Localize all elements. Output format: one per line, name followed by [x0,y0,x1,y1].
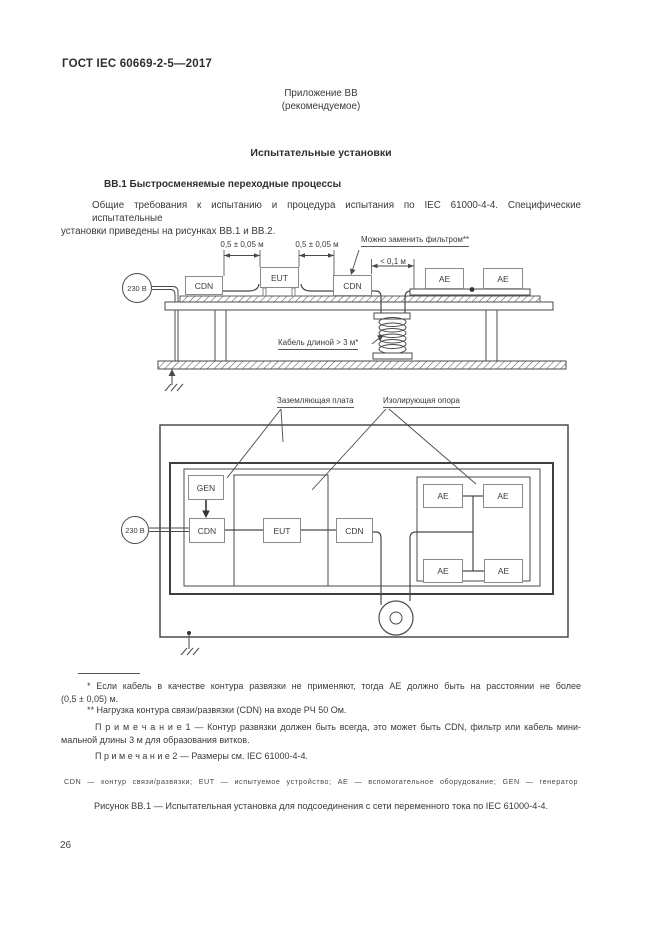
filter-note: Можно заменить фильтром** [361,235,469,247]
ae-box: AE [423,484,463,508]
dimension-label-left: 0,5 ± 0,05 м [210,240,274,250]
dimension-label-right: 0,5 ± 0,05 м [285,240,349,250]
ground-plane-hatch [158,361,566,369]
gen-box: GEN [188,475,224,500]
footnote-2: ** Нагрузка контура связи/развязки (CDN)… [61,704,581,717]
note-line: мальной длины 3 м для образования витков… [61,734,581,747]
ae-box: AE [483,484,523,508]
cdn-box: CDN [185,276,223,295]
insulating-support-label: Изолирующая опора [383,396,460,408]
footnote-separator [78,673,140,674]
abbreviation-legend: CDN — контур связи/развязки; EUT — испыт… [64,777,578,786]
mains-source-circle: 230 В [121,516,149,544]
table-top-hatch [180,296,540,302]
eut-box: EUT [260,267,299,288]
note-1: П р и м е ч а н и е 1 — Контур развязки … [61,721,581,746]
dimension-label-gap: < 0,1 м [372,257,414,267]
cable-coil [379,601,413,635]
cable-cdn-eut [223,284,259,291]
document-page: ГОСТ IEC 60669-2-5—2017 Приложение ВВ (р… [0,0,661,935]
insulating-support-leader [389,409,476,484]
coil-top-flange [374,313,410,319]
paragraph-line: Общие требования к испытанию и процедура… [61,199,581,225]
mains-source-circle: 230 В [122,273,152,303]
cdn-box: CDN [336,518,373,543]
coil-bottom-flange [373,353,412,359]
eut-box: EUT [263,518,301,543]
figure-caption: Рисунок ВВ.1 — Испытательная установка д… [61,800,581,813]
doc-title: Испытательные установки [61,147,581,160]
table-slab [165,302,553,310]
ae-box: AE [423,559,463,583]
side-view-diagram [100,228,580,400]
note-2: П р и м е ч а н и е 2 — Размеры см. IEC … [61,750,581,763]
footnote-line: * Если кабель в качестве контура развязк… [61,680,581,693]
insulating-support-leader [312,409,386,490]
standard-header: ГОСТ IEC 60669-2-5—2017 [62,58,212,70]
table-leg [486,310,497,361]
annex-type: (рекомендуемое) [61,100,581,113]
footnote-1: * Если кабель в качестве контура развязк… [61,680,581,705]
cable-note: Кабель длиной > 3 м* [278,338,358,350]
annex-label: Приложение ВВ [61,87,581,100]
ae-box: AE [425,268,464,289]
cdn-box: CDN [333,275,372,296]
cdn-box: CDN [189,518,225,543]
cable-eut-cdn [301,284,333,291]
ground-plate-label: Заземляющая плата [277,396,354,408]
section-heading: ВВ.1 Быстросменяемые переходные процессы [104,178,341,191]
ae-box: AE [484,559,523,583]
table-leg [215,310,226,361]
junction-dot [470,287,475,292]
note-line: П р и м е ч а н и е 1 — Контур развязки … [61,721,581,734]
filter-note-leader [353,250,360,270]
ae-box: AE [483,268,523,289]
ground-plate-leader [227,409,281,478]
page-number: 26 [60,840,71,851]
